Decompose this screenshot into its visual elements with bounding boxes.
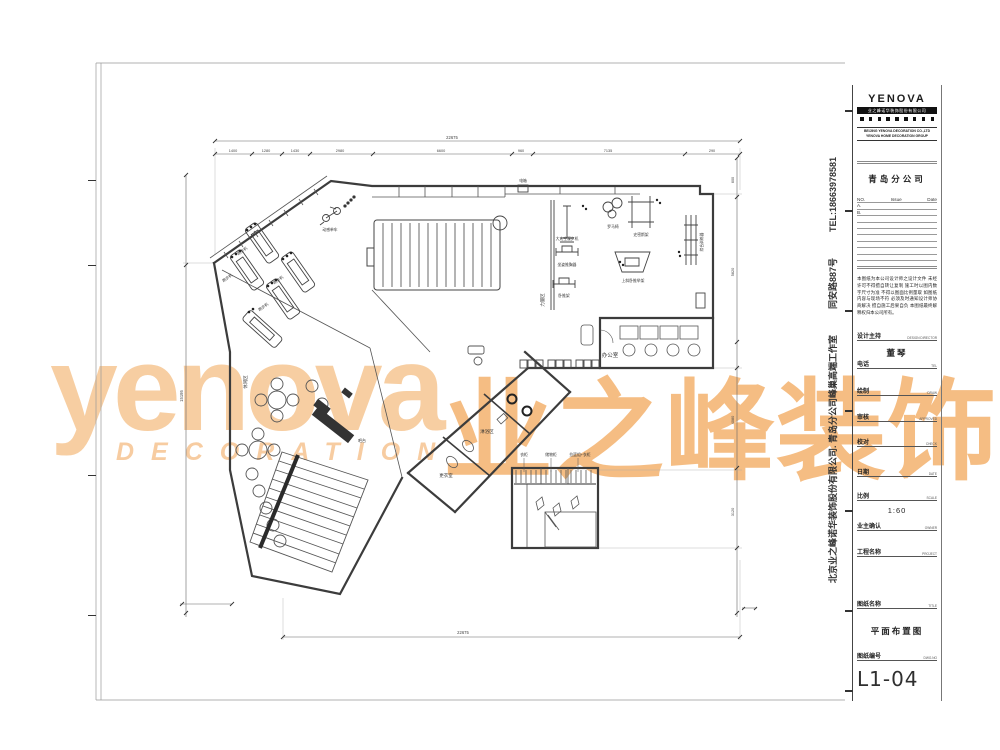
equip-label-bike: 动感单车 — [322, 227, 337, 232]
notes-paragraph: 本图纸为本公司设计师之设计文件 未经许可不得擅自转让复制 施工时以图内数字尺寸为… — [857, 276, 937, 317]
field-date: 日期 DATE — [857, 467, 937, 477]
room-label-locker: 更衣室 — [439, 472, 453, 479]
field-label: 校对 — [857, 437, 869, 446]
equip-label-trainer: 综合训练器 — [699, 232, 704, 251]
field-approved: 审核 APPROVED — [857, 412, 937, 422]
field-caption: DRAW — [927, 391, 937, 395]
field-caption: SCALE — [927, 496, 937, 500]
room-label-bar: 吧台 — [358, 437, 366, 443]
border-tick — [845, 410, 853, 412]
room-label-shower: 淋浴区 — [480, 428, 494, 435]
field-label: 工程名称 — [857, 547, 881, 556]
logo-brand: YENOVA — [857, 93, 937, 105]
equip-label-power-box: 电箱 — [519, 178, 527, 183]
office-furniture — [581, 325, 700, 356]
strength-equipment — [518, 185, 705, 310]
logo-company-line1: BEIJING YENOVA DECORATION CO.,LTD — [857, 129, 937, 134]
dim-seg: 290 — [709, 149, 715, 153]
central-equipment — [367, 216, 507, 290]
dim-top-total: 22675 — [446, 135, 458, 140]
logo-squares — [857, 117, 937, 121]
logo-company-line2: YENOVA HOME DECORATION GROUP — [857, 134, 937, 139]
divider — [857, 161, 937, 164]
bedroom — [514, 458, 596, 547]
dim-seg: 5820 — [731, 268, 735, 276]
dim-left-total: 15195 — [179, 390, 184, 402]
dim-seg: 600 — [731, 177, 735, 183]
closet-label-2: 储物柜 — [545, 452, 557, 457]
border-tick — [845, 310, 853, 312]
dim-seg: 1280 — [262, 149, 270, 153]
spin-bike-icon — [320, 196, 355, 225]
field-caption: DATE — [929, 472, 937, 476]
field-draw: 绘制 DRAW — [857, 386, 937, 396]
staircase — [250, 452, 368, 572]
border-tick — [845, 690, 853, 692]
rev-col-no: NO. — [857, 197, 865, 202]
treadmill-group — [229, 196, 355, 349]
border-tick — [88, 615, 96, 616]
equip-label-treadmill: 跑步机 — [221, 272, 233, 283]
floor-plan-drawing: 22675 22675 15195 1400 1280 1430 2980 66… — [0, 0, 1000, 750]
field-caption: CHECK — [926, 442, 937, 446]
closet-label-1: 衣柜 — [520, 452, 528, 457]
border-tick — [88, 180, 96, 181]
field-dwgno: 图纸编号 DWG.NO — [857, 651, 937, 661]
field-label: 业主确认 — [857, 521, 881, 530]
border-tick — [88, 475, 96, 476]
divider — [857, 266, 937, 269]
revision-table: NO. Issue Date A. B. — [857, 197, 937, 261]
dim-seg: 6600 — [437, 149, 445, 153]
equip-label-smith: 史密斯架 — [633, 232, 648, 237]
dim-seg: 1430 — [291, 149, 299, 153]
dim-seg: 960 — [518, 149, 524, 153]
zone-label-strength: 力量区 — [539, 293, 546, 307]
field-label: 图纸编号 — [857, 651, 881, 660]
field-label: 绘制 — [857, 386, 869, 395]
dim-seg: 4080 — [731, 416, 735, 424]
field-label: 日期 — [857, 467, 869, 476]
title-block: YENOVA 业之峰诺华装饰股份有限公司 BEIJING YENOVA DECO… — [852, 85, 942, 701]
company-address: 同安路887号 — [828, 258, 838, 309]
designer-name: 董琴 — [857, 347, 937, 359]
rev-col-issue: Issue — [891, 197, 902, 202]
equip-label-chest-press: 坐姿推胸器 — [558, 262, 577, 267]
field-design-director: 设计主持 DESIGN DIRECTOR — [857, 331, 937, 341]
dimension-lines — [180, 139, 757, 640]
logo-bar: 业之峰诺华装饰股份有限公司 — [857, 107, 937, 114]
border-tick — [88, 265, 96, 266]
locker-cabinets — [520, 360, 599, 368]
field-label: 设计主持 — [857, 331, 881, 340]
room-label-office: 办公室 — [602, 351, 619, 359]
equip-label-incline: 上斜卧推举架 — [622, 278, 645, 283]
border-tick — [845, 510, 853, 512]
border-tick — [845, 210, 853, 212]
branch-name: 青岛分公司 — [857, 173, 937, 185]
field-caption: TEL — [931, 364, 937, 368]
sheet-frame — [96, 63, 845, 700]
field-caption: APPROVED — [919, 417, 937, 421]
equip-label-roman-chair: 罗马椅 — [607, 224, 619, 229]
field-caption: DESIGN DIRECTOR — [907, 336, 937, 340]
field-label: 比例 — [857, 491, 869, 500]
field-caption: TITLE — [928, 604, 937, 608]
revision-row — [857, 255, 937, 261]
field-tel: 电话 TEL — [857, 359, 937, 369]
rev-row-a: A. — [857, 203, 861, 208]
border-tick — [845, 610, 853, 612]
equip-label-bench: 卧推架 — [558, 293, 570, 298]
dim-seg: 2980 — [336, 149, 344, 153]
dim-seg: 3120 — [731, 508, 735, 516]
dimension-numbers: 22675 22675 15195 1400 1280 1430 2980 66… — [179, 135, 735, 635]
equip-label-treadmill: 跑步机 — [257, 301, 269, 312]
field-label: 审核 — [857, 412, 869, 421]
zone-label-lounge: 休闲区 — [242, 375, 249, 389]
dim-bottom-total: 22675 — [457, 630, 469, 635]
dim-seg: 1400 — [229, 149, 237, 153]
field-label: 电话 — [857, 359, 869, 368]
dim-seg: 7135 — [604, 149, 612, 153]
drawing-title: 平面布置图 — [857, 625, 937, 637]
field-title: 图纸名称 TITLE — [857, 599, 937, 609]
rev-row-b: B. — [857, 210, 861, 215]
field-project: 工程名称 PROJECT — [857, 547, 937, 557]
equip-label-spacewalker: 大太空漫步机 — [556, 236, 579, 241]
company-tel: TEL:18663978581 — [828, 157, 838, 232]
company-name: 北京业之峰诺华装饰股份有限公司. 青岛分公司峰巢高端工作室 — [828, 335, 838, 583]
sheet-side-company-text: 北京业之峰诺华装饰股份有限公司. 青岛分公司峰巢高端工作室同安路887号TEL:… — [826, 89, 842, 651]
field-check: 校对 CHECK — [857, 437, 937, 447]
drawing-sheet: yenova DECORATION 业之峰装饰 — [0, 0, 1000, 750]
field-scale: 比例 SCALE — [857, 491, 937, 501]
equip-label-treadmill: 跑步机 — [272, 274, 284, 285]
border-tick — [845, 110, 853, 112]
field-label: 图纸名称 — [857, 599, 881, 608]
field-caption: OWNER — [925, 526, 937, 530]
logo-block: YENOVA 业之峰诺华装饰股份有限公司 BEIJING YENOVA DECO… — [857, 93, 937, 141]
scale-value: 1:60 — [857, 506, 937, 515]
field-owner: 业主确认 OWNER — [857, 521, 937, 531]
field-caption: DWG.NO — [924, 656, 937, 660]
walls — [214, 181, 713, 594]
closet-label-3: 拉篮组+衣柜 — [569, 452, 590, 457]
field-caption: PROJECT — [922, 552, 937, 556]
drawing-number: L1-04 — [857, 667, 937, 691]
rev-col-date: Date — [927, 197, 937, 202]
